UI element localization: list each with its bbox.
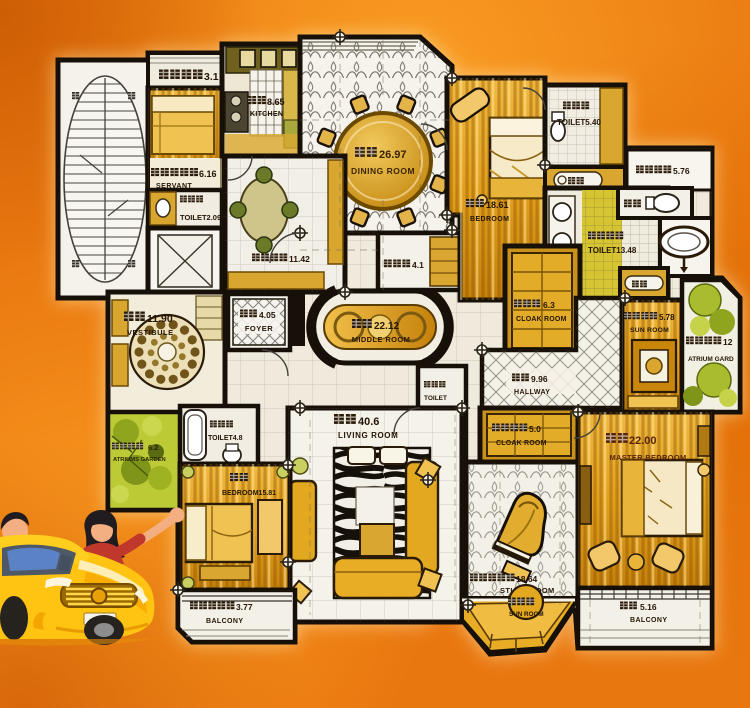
- svg-text:KITCHEN: KITCHEN: [250, 111, 283, 118]
- svg-text:18.64: 18.64: [516, 574, 538, 584]
- svg-text:CLOAK ROOM: CLOAK ROOM: [496, 440, 547, 447]
- svg-text:11.90: 11.90: [147, 313, 173, 325]
- svg-text:12: 12: [723, 337, 733, 347]
- svg-text:ATRIUMS GARDEN: ATRIUMS GARDEN: [113, 457, 166, 463]
- svg-text:40.6: 40.6: [358, 416, 379, 428]
- svg-text:22.12: 22.12: [374, 321, 399, 332]
- svg-text:DINING ROOM: DINING ROOM: [351, 166, 415, 176]
- svg-text:VESTIBULE: VESTIBULE: [127, 328, 174, 337]
- svg-text:5.16: 5.16: [640, 602, 657, 612]
- svg-text:TOILET4.8: TOILET4.8: [208, 435, 243, 442]
- svg-text:22.00: 22.00: [629, 435, 657, 447]
- svg-text:MIDDLE ROOM: MIDDLE ROOM: [352, 335, 411, 344]
- svg-text:SUN ROOM: SUN ROOM: [630, 327, 669, 334]
- svg-text:6.2: 6.2: [148, 443, 158, 452]
- svg-text:5.78: 5.78: [659, 313, 675, 322]
- svg-text:6.16: 6.16: [199, 169, 217, 179]
- svg-text:3.77: 3.77: [236, 602, 253, 612]
- svg-text:LIVING ROOM: LIVING ROOM: [338, 431, 398, 440]
- svg-text:TOILET5.40: TOILET5.40: [557, 118, 601, 127]
- svg-text:5.0: 5.0: [529, 424, 541, 434]
- svg-text:BALCONY: BALCONY: [206, 618, 243, 625]
- svg-text:26.97: 26.97: [379, 149, 407, 161]
- svg-text:CLOAK ROOM: CLOAK ROOM: [516, 316, 567, 323]
- svg-text:8.65: 8.65: [267, 97, 285, 107]
- svg-text:3.1: 3.1: [204, 71, 219, 83]
- svg-text:11.42: 11.42: [289, 254, 310, 264]
- svg-text:BALCONY: BALCONY: [630, 617, 667, 624]
- svg-text:BEDROOM15.81: BEDROOM15.81: [222, 490, 276, 497]
- svg-text:ATRIUM GARD: ATRIUM GARD: [688, 356, 734, 363]
- svg-text:6.3: 6.3: [543, 300, 555, 310]
- svg-text:MASTER BEDROOM: MASTER BEDROOM: [609, 453, 686, 462]
- svg-text:9.96: 9.96: [531, 374, 548, 384]
- svg-text:FOYER: FOYER: [245, 324, 273, 333]
- svg-text:4.05: 4.05: [259, 310, 276, 320]
- svg-text:BEDROOM: BEDROOM: [470, 216, 509, 223]
- svg-text:TOILET13.48: TOILET13.48: [588, 246, 637, 255]
- svg-text:4.1: 4.1: [412, 260, 424, 270]
- svg-text:HALLWAY: HALLWAY: [514, 389, 550, 396]
- svg-text:5.76: 5.76: [673, 166, 690, 176]
- svg-text:18.61: 18.61: [486, 200, 509, 210]
- svg-text:TOILET: TOILET: [424, 395, 447, 402]
- svg-text:SUN ROOM: SUN ROOM: [509, 611, 544, 618]
- svg-text:TOILET2.09: TOILET2.09: [180, 213, 221, 222]
